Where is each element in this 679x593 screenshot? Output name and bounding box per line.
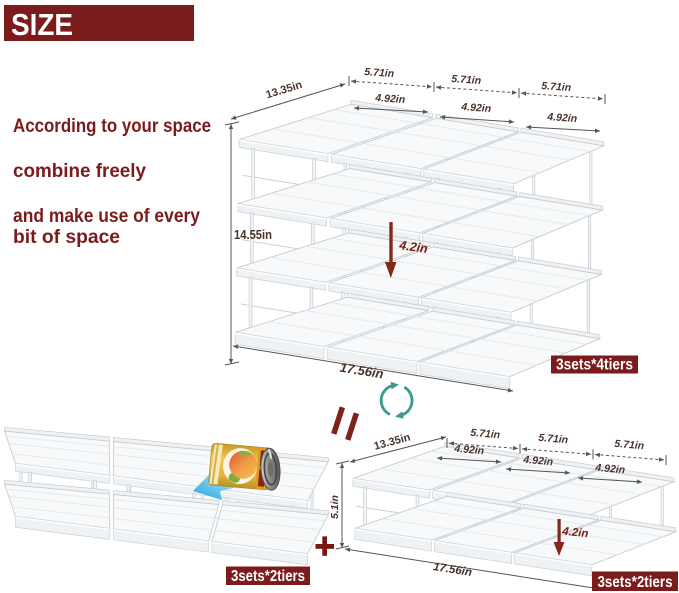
svg-text:combine freely: combine freely [13, 161, 146, 182]
svg-text:5.71in: 5.71in [451, 73, 482, 87]
svg-text:4.92in: 4.92in [460, 101, 492, 115]
svg-text:bit of space: bit of space [13, 227, 120, 248]
svg-text:3sets*2tiers: 3sets*2tiers [598, 574, 673, 591]
svg-text:14.55in: 14.55in [234, 228, 272, 242]
svg-text:4.92in: 4.92in [374, 92, 406, 106]
svg-text:According to your space: According to your space [13, 116, 211, 137]
svg-text:5.1in: 5.1in [329, 495, 341, 519]
svg-text:3sets*4tiers: 3sets*4tiers [556, 357, 633, 374]
svg-text:SIZE: SIZE [11, 7, 73, 42]
svg-text:5.71in: 5.71in [541, 80, 572, 94]
svg-text:5.71in: 5.71in [364, 66, 395, 80]
svg-text:and make use of every: and make use of every [13, 206, 200, 227]
svg-text:4.92in: 4.92in [546, 111, 578, 125]
svg-text:3sets*2tiers: 3sets*2tiers [231, 568, 305, 585]
